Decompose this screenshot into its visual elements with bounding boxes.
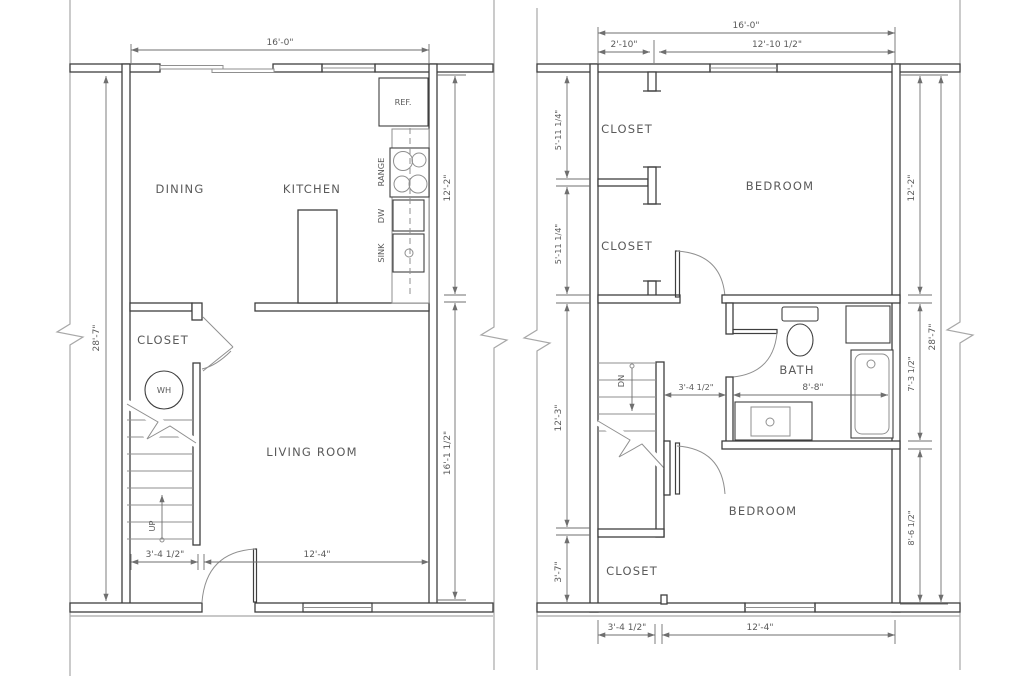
toilet-bowl: [787, 324, 813, 356]
kitchen-counter: REF. RANGE DW SINK: [376, 78, 429, 303]
dim-f2-top-left: 2'-10": [610, 40, 637, 50]
dishwasher: [393, 200, 424, 231]
room-label-bedroom-2: BEDROOM: [729, 504, 797, 518]
bath-door-leaf: [733, 330, 777, 334]
linen-closet: [846, 306, 890, 343]
toilet-tank: [782, 307, 818, 321]
sliding-door: [160, 66, 274, 73]
dim-f2-bath: 8'-8": [802, 383, 823, 393]
room-label-dining: DINING: [156, 182, 205, 196]
dim-f2-right-3: 8'-6 1/2": [906, 510, 916, 545]
dim-f1-bottom-left: 3'-4 1/2": [146, 550, 185, 560]
boundary-lines: [57, 0, 973, 676]
sink-label: SINK: [376, 243, 386, 263]
first-floor-windows: [303, 64, 375, 612]
room-label-kitchen: KITCHEN: [283, 182, 341, 196]
window: [322, 64, 375, 72]
entry-door: [202, 549, 257, 602]
dim-f2-bottom-right: 12'-4": [746, 623, 773, 633]
window: [745, 603, 815, 612]
closet-door: [202, 317, 233, 371]
room-label-closet-1: CLOSET: [601, 122, 653, 136]
dim-f1-right-upper: 12'-2": [443, 174, 453, 201]
room-label-living-room: LIVING ROOM: [266, 445, 357, 459]
dim-f1-bottom-right: 12'-4": [303, 550, 330, 560]
wh-label: WH: [157, 385, 171, 395]
range-label: RANGE: [376, 158, 386, 187]
dim-f2-hall: 3'-4 1/2": [678, 382, 713, 392]
dim-f2-top-right: 12'-10 1/2": [752, 40, 802, 50]
up-label: UP: [147, 520, 157, 531]
dn-label: DN: [616, 375, 626, 387]
second-floor-room-labels: CLOSET CLOSET BEDROOM BATH BEDROOM CLOSE…: [601, 122, 815, 578]
dim-f2-top: 16'-0": [732, 21, 759, 31]
room-label-bath: BATH: [779, 363, 814, 377]
closet-partitions: [598, 72, 680, 303]
first-floor-plan: UP WH REF. RANGE DW SINK DINING: [70, 38, 493, 612]
first-floor-partitions: [130, 210, 429, 320]
window: [710, 64, 777, 72]
floor-plan-sheet: UP WH REF. RANGE DW SINK DINING: [0, 0, 1024, 676]
stairs-down: DN: [598, 362, 664, 537]
kitchen-sink: [393, 234, 424, 272]
bedroom2-door: [664, 441, 725, 495]
dim-f2-right-outer: 28'-7": [928, 323, 938, 350]
dim-f2-right-2: 7'-3 1/2": [906, 356, 916, 391]
water-heater: WH: [145, 371, 183, 409]
room-label-closet-2: CLOSET: [601, 239, 653, 253]
vanity-sink: [751, 407, 790, 436]
floor-plan-drawing: UP WH REF. RANGE DW SINK DINING: [0, 0, 1024, 676]
dim-f2-left-4: 3'-7": [554, 561, 564, 582]
dim-f2-bottom-left: 3'-4 1/2": [608, 623, 647, 633]
room-label-bedroom-1: BEDROOM: [746, 179, 814, 193]
bedroom1-door: [676, 251, 726, 297]
dim-f1-right-lower: 16'-1 1/2": [443, 431, 453, 475]
dim-f2-left-3: 12'-3": [554, 404, 564, 431]
first-floor-walls: [70, 64, 493, 612]
second-floor-plan: DN CLOSET CLOSET BEDROOM BATH BEDROOM CL…: [537, 21, 960, 644]
ref-label: REF.: [395, 97, 412, 107]
dim-f1-left: 28'-7": [92, 324, 102, 351]
room-label-closet: CLOSET: [137, 333, 189, 347]
dim-f2-left-1: 5'-11 1/4": [553, 110, 563, 150]
dim-f2-right-1: 12'-2": [907, 174, 917, 201]
bath-door-arc: [733, 333, 777, 377]
dim-f1-top: 16'-0": [266, 38, 293, 48]
dw-label: DW: [376, 209, 386, 223]
dim-f2-left-2: 5'-11 1/4": [553, 224, 563, 264]
room-label-closet-3: CLOSET: [606, 564, 658, 578]
